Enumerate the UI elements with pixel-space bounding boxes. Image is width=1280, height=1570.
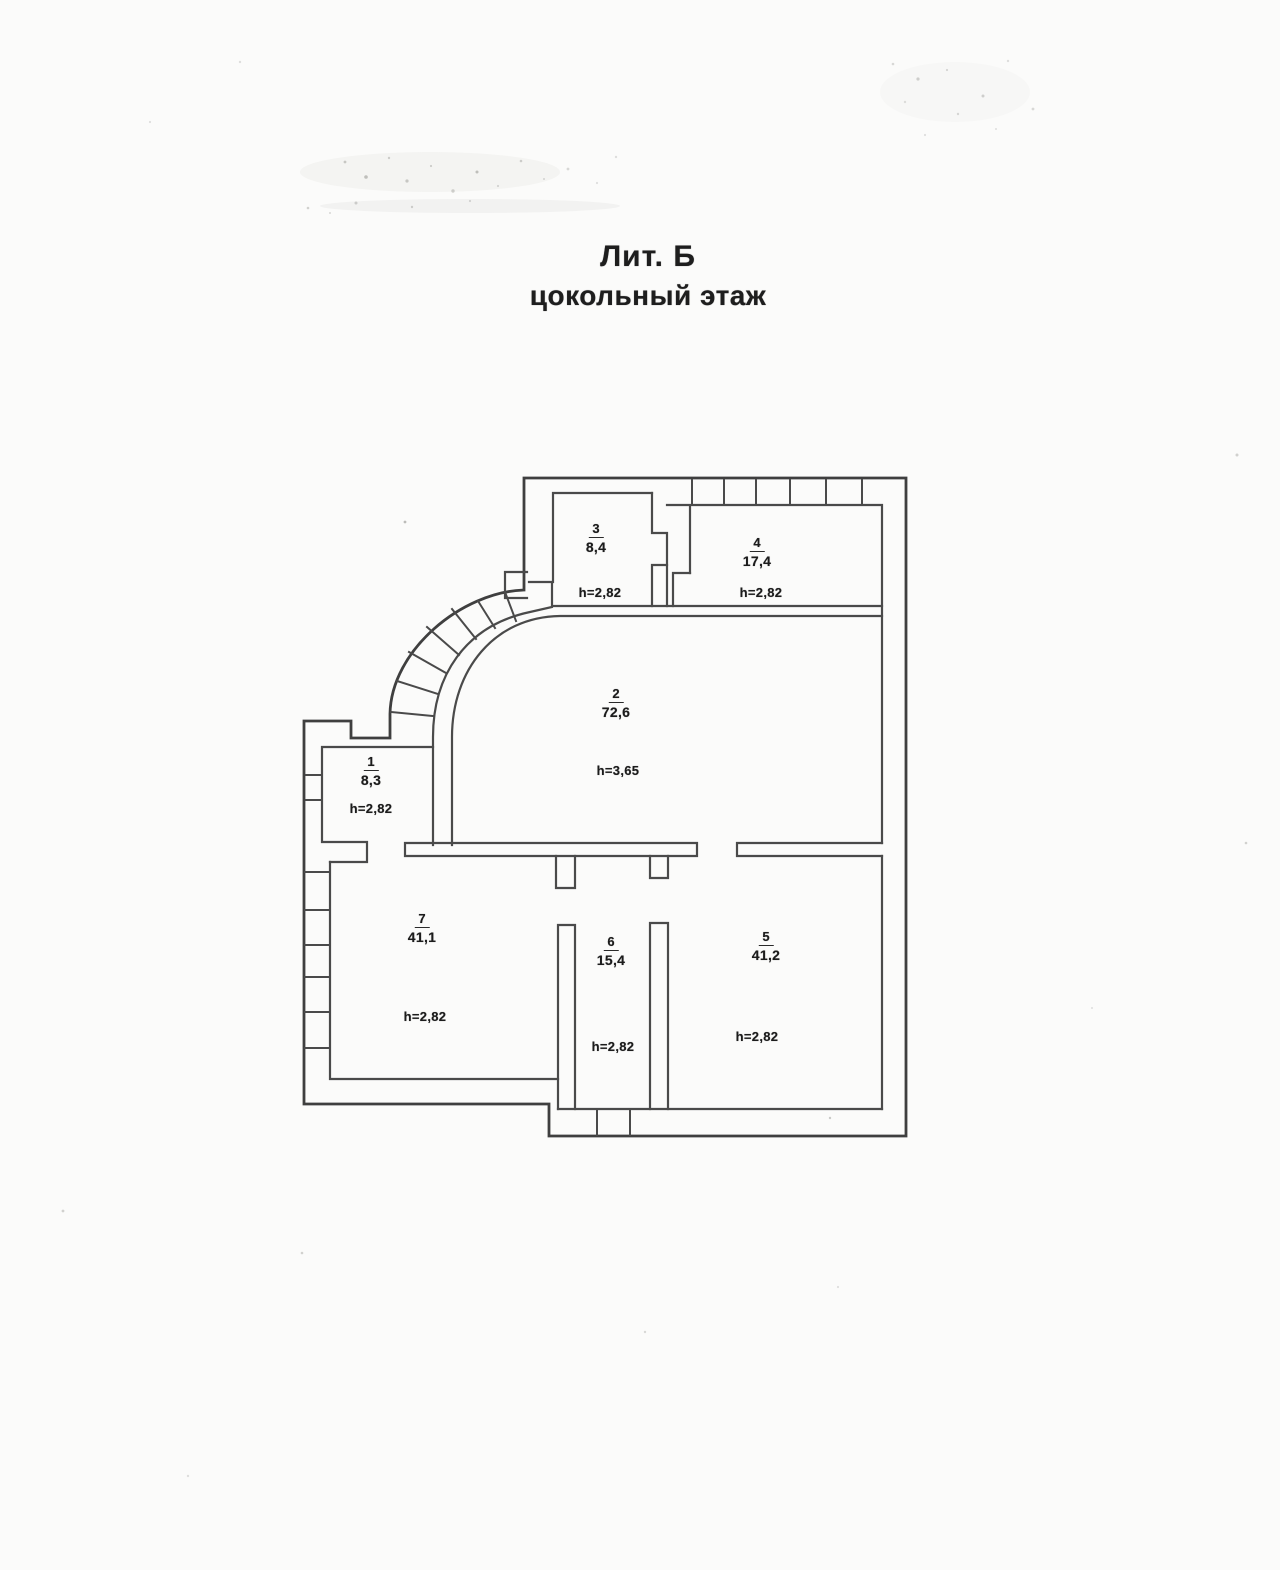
room-2-number: 2: [608, 686, 623, 703]
wall-hatching: [304, 775, 330, 1048]
room-label-5: 5 41,2: [752, 927, 780, 965]
room-label-4: 4 17,4: [743, 533, 771, 571]
room-5-height: h=2,82: [736, 1029, 779, 1044]
scan-noise: [62, 60, 1248, 1477]
room-7-area: 41,1: [408, 929, 436, 947]
room-1-area: 8,3: [361, 772, 381, 790]
room-1-number: 1: [363, 754, 378, 771]
room-4-height: h=2,82: [740, 585, 783, 600]
room-3-area: 8,4: [586, 539, 606, 557]
room-label-1: 1 8,3: [361, 752, 381, 790]
window-hatching: [692, 479, 862, 505]
room-7-height: h=2,82: [404, 1009, 447, 1024]
room-2-area: 72,6: [602, 704, 630, 722]
room-1-height: h=2,82: [350, 801, 393, 816]
room-2-height: h=3,65: [597, 763, 640, 778]
scanned-floor-plan-page: Лит. Б цокольный этаж: [0, 0, 1280, 1570]
room-5-number: 5: [758, 929, 773, 946]
room-5-area: 41,2: [752, 947, 780, 965]
room-label-2: 2 72,6: [602, 684, 630, 722]
outer-wall: [304, 478, 906, 1136]
room-4-area: 17,4: [743, 553, 771, 571]
room-6-height: h=2,82: [592, 1039, 635, 1054]
room-6-area: 15,4: [597, 952, 625, 970]
room-label-6: 6 15,4: [597, 932, 625, 970]
floor-plan-drawing: [0, 0, 1280, 1570]
room-7-number: 7: [414, 911, 429, 928]
room-3-number: 3: [588, 521, 603, 538]
room-4-number: 4: [749, 535, 764, 552]
room-3-height: h=2,82: [579, 585, 622, 600]
room-6-number: 6: [603, 934, 618, 951]
room-label-7: 7 41,1: [408, 909, 436, 947]
room-label-3: 3 8,4: [586, 519, 606, 557]
door-ticks: [597, 1109, 630, 1136]
